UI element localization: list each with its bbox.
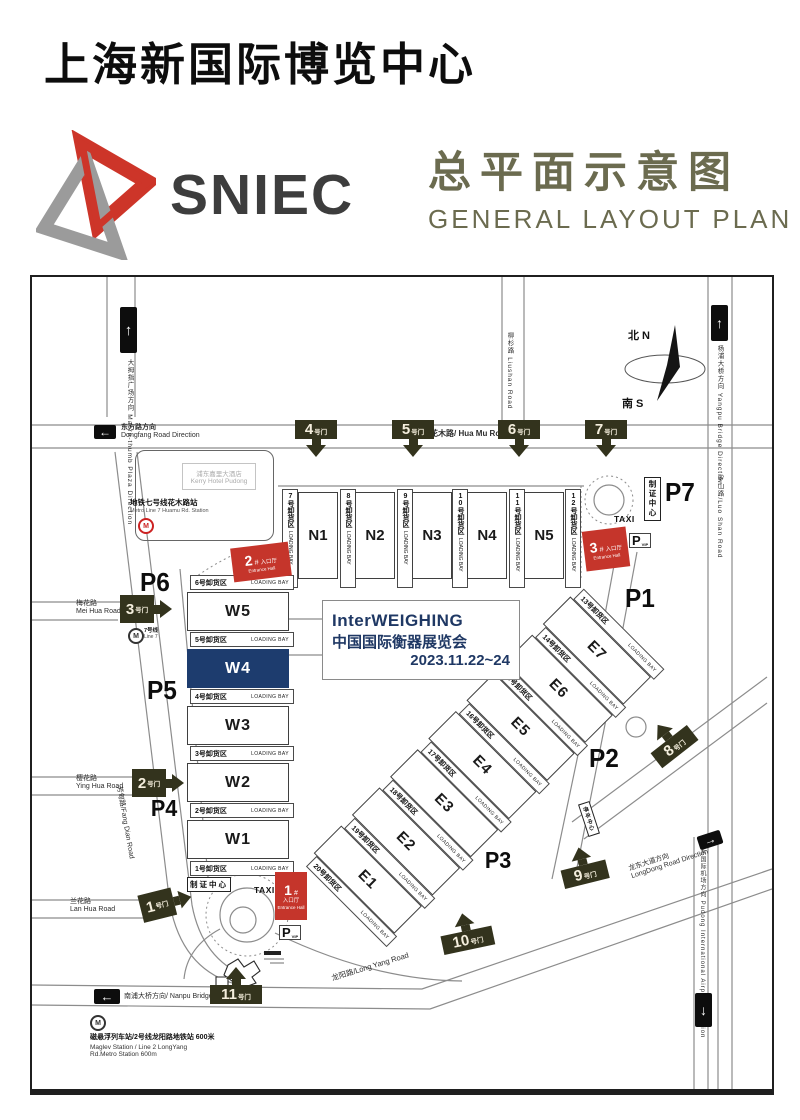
loading-bay-en: LOADING BAY	[251, 808, 289, 814]
road-liushan: 柳杉路 Liushan Road	[504, 332, 514, 422]
kerry-hotel-label: 浦东嘉里大酒店 Kerry Hotel Pudong	[182, 463, 256, 490]
hall-w1: W1	[187, 820, 289, 859]
gate-suffix: 号门	[135, 604, 148, 614]
metro-icon-maglev: M	[90, 1015, 106, 1031]
road-luoshan: 罗山路/Luo Shan Road	[714, 475, 724, 547]
loading-bay-en: LOADING BAY	[402, 531, 408, 565]
hall-n2: N2	[355, 492, 395, 579]
gate-11-number: 11	[221, 987, 237, 1002]
loading-bay-en: LOADING BAY	[251, 637, 289, 643]
gate-7-box: 7号门	[585, 420, 627, 439]
gate-6-box: 6号门	[498, 420, 540, 439]
entrance-hall-2: 2#入口厅 Entrance Hall	[230, 542, 292, 583]
loading-bay-4: 4号卸货区LOADING BAY	[190, 689, 294, 704]
hall-w2: W2	[187, 763, 289, 802]
line7-zh: 7号线	[144, 626, 158, 634]
hall-w4-highlighted: W4	[187, 649, 289, 688]
gate-suffix: 号门	[411, 426, 424, 436]
event-dates: 2023.11.22~24	[332, 652, 510, 669]
gate-5-arrow-tip	[403, 445, 423, 457]
layout-map: 北 N 南 S ↑ ← ↑ ← ↓ → 大拇指广场方向 Macro-thumb …	[30, 275, 774, 1095]
loading-bay-9-label: 9号卸货区	[400, 493, 410, 528]
loading-bay-12: 12号卸货区LOADING BAY	[565, 489, 581, 588]
entrance-3-number: 3	[589, 539, 599, 556]
gate-4-number: 4	[305, 422, 313, 437]
road-lan-hua: 兰花路 Lan Hua Road	[70, 896, 115, 913]
metro-icon-huamu: M	[138, 518, 154, 534]
gate-6-number: 6	[508, 422, 516, 437]
loading-bay-en: LOADING BAY	[457, 538, 463, 572]
gate-suffix: 号门	[314, 426, 327, 436]
loading-bay-5-label: 5号卸货区	[195, 635, 227, 645]
loading-bay-en: LOADING BAY	[345, 531, 351, 565]
parking-p2: P2	[589, 743, 619, 774]
event-info-box: InterWEIGHING 中国国际衡器展览会 2023.11.22~24	[322, 600, 520, 680]
gate-suffix: 号门	[583, 868, 598, 881]
parking-p1: P1	[625, 583, 655, 614]
loading-bay-5: 5号卸货区LOADING BAY	[190, 632, 294, 647]
road-mei-hua-zh: 梅花路	[76, 598, 121, 608]
loading-bay-en: LOADING BAY	[251, 866, 289, 872]
sniec-layout-plan: { "header": { "venue_title": "上海新国际博览中心"…	[0, 0, 800, 1120]
road-dongfang-zh: 东方路方向	[121, 422, 200, 432]
badge-center-west: 制证中心	[187, 877, 231, 892]
gate-6: 6号门	[498, 420, 540, 457]
event-name-en: InterWEIGHING	[332, 611, 510, 631]
hall-n1: N1	[298, 492, 338, 579]
parking-p6: P6	[140, 567, 170, 598]
road-lan-hua-en: Lan Hua Road	[70, 906, 115, 913]
loading-bay-11: 11号卸货区LOADING BAY	[509, 489, 525, 588]
vip-p: P	[282, 926, 291, 939]
maglev-en1: Maglev Station / Line 2 LongYang	[90, 1044, 214, 1051]
compass-south-label: 南 S	[622, 395, 643, 411]
gate-6-arrow-tip	[509, 445, 529, 457]
parking-p7: P7	[665, 477, 695, 508]
road-mei-hua-en: Mei Hua Road	[76, 608, 121, 615]
entrance-hall-3: 3#入口厅 Entrance Hall	[582, 526, 631, 571]
loading-bay-2: 2号卸货区LOADING BAY	[190, 803, 294, 818]
road-lan-hua-zh: 兰花路	[70, 896, 115, 906]
taxi-label-north: TAXI	[614, 514, 635, 524]
loading-bay-8-label: 8号卸货区	[343, 493, 353, 528]
loading-bay-9: 9号卸货区LOADING BAY	[397, 489, 413, 588]
taxi-label-south: TAXI	[254, 885, 275, 895]
loading-bay-en: LOADING BAY	[514, 538, 520, 572]
gate-2-box: 2号门	[132, 769, 166, 797]
gate-3: 3号门	[120, 595, 172, 623]
sniec-logo-icon	[36, 130, 156, 260]
loading-bay-3: 3号卸货区LOADING BAY	[190, 746, 294, 761]
gate-suffix: 号门	[517, 426, 530, 436]
loading-bay-10: 10号卸货区LOADING BAY	[452, 489, 468, 588]
vip-p: P	[632, 534, 641, 547]
huamu-station-zh: 地铁七号线花木路站	[130, 497, 209, 508]
logo-text: SNIEC	[170, 162, 354, 228]
loading-bay-en: LOADING BAY	[251, 694, 289, 700]
hall-w5: W5	[187, 592, 289, 631]
gate-5: 5号门	[392, 420, 434, 457]
loading-bay-8: 8号卸货区LOADING BAY	[340, 489, 356, 588]
gate-3-number: 3	[126, 602, 134, 617]
kerry-hotel-en: Kerry Hotel Pudong	[191, 478, 248, 485]
huamu-station-en: Metro Line 7 Huamu Rd. Station	[130, 508, 209, 514]
maglev-zh: 磁悬浮列车站/2号线龙阳路地铁站 600米	[90, 1032, 214, 1042]
parking-p5: P5	[147, 675, 177, 706]
venue-title: 上海新国际博览中心	[44, 28, 476, 93]
vip-parking-north: PVIP	[629, 533, 651, 548]
entrance-1-en: Entrance Hall	[277, 905, 304, 910]
road-dongfang-en: Dongfang Road Direction	[121, 432, 200, 439]
gate-2-arrow-tip	[172, 774, 184, 792]
gate-3-box: 3号门	[120, 595, 154, 623]
gate-7-arrow-tip	[596, 445, 616, 457]
gate-4-arrow-tip	[306, 445, 326, 457]
gate-suffix: 号门	[154, 898, 169, 911]
hall-w3: W3	[187, 706, 289, 745]
entrance-hall-1: 1# 入口厅 Entrance Hall	[275, 872, 307, 920]
loading-bay-4-label: 4号卸货区	[195, 692, 227, 702]
loading-bay-2-label: 2号卸货区	[195, 806, 227, 816]
gate-11: 11号门	[210, 967, 262, 1004]
gate-2: 2号门	[132, 769, 184, 797]
gate-2-number: 2	[138, 776, 146, 791]
gate-11-arrow-tip	[226, 967, 246, 979]
parking-p4: P4	[151, 795, 177, 822]
dongfang-arrow-icon: ←	[94, 425, 116, 439]
nanpu-arrow-icon: ←	[94, 989, 120, 1004]
hall-n4: N4	[467, 492, 507, 579]
badge-center-north: 制证中心	[644, 477, 661, 521]
gate-5-box: 5号门	[392, 420, 434, 439]
road-dongfang: 东方路方向 Dongfang Road Direction	[121, 422, 200, 439]
gate-3-arrow-tip	[160, 600, 172, 618]
gate-7-number: 7	[595, 422, 603, 437]
macro-thumb-arrow-icon: ↑	[120, 307, 137, 353]
plan-title-zh: 总平面示意图	[428, 138, 740, 200]
maglev-en2: Rd.Metro Station 600m	[90, 1051, 214, 1058]
gate-4-box: 4号门	[295, 420, 337, 439]
loading-bay-en: LOADING BAY	[251, 751, 289, 757]
line7-station-label: 7号线 Line 7	[144, 626, 158, 640]
gate-suffix: 号门	[147, 778, 160, 788]
loading-bay-12-label: 12号卸货区	[568, 493, 578, 535]
gate-10-number: 10	[451, 933, 470, 951]
loading-bay-10-label: 10号卸货区	[455, 493, 465, 535]
vip-label: VIP	[292, 934, 298, 939]
loading-bay-1-label: 1号卸货区	[195, 864, 227, 874]
loading-bay-en: LOADING BAY	[251, 580, 289, 586]
entrance-1-number: 1	[284, 882, 292, 898]
parking-p3: P3	[485, 847, 511, 874]
compass-north-label: 北 N	[628, 327, 650, 343]
yangpu-arrow-icon: ↑	[711, 305, 728, 341]
loading-bay-3-label: 3号卸货区	[195, 749, 227, 759]
gate-11-box: 11号门	[210, 985, 262, 1004]
road-ying-hua-zh: 樱花路	[76, 773, 123, 783]
maglev-station-label: 磁悬浮列车站/2号线龙阳路地铁站 600米 Maglev Station / L…	[90, 1032, 214, 1058]
gate-suffix: 号门	[238, 991, 251, 1001]
entrance-2-number: 2	[244, 552, 254, 569]
kerry-hotel-zh: 浦东嘉里大酒店	[196, 468, 242, 478]
loading-bay-11-label: 11号卸货区	[512, 493, 522, 535]
line7-en: Line 7	[144, 634, 158, 640]
road-mei-hua: 梅花路 Mei Hua Road	[76, 598, 121, 615]
gate-5-number: 5	[402, 422, 410, 437]
loading-bay-7-label: 7号卸货区	[285, 493, 295, 528]
plan-title-en: GENERAL LAYOUT PLAN	[428, 204, 792, 235]
gate-suffix: 号门	[604, 426, 617, 436]
hall-n3: N3	[412, 492, 452, 579]
hall-n5: N5	[524, 492, 564, 579]
metro-icon-line7: M	[128, 628, 144, 644]
vip-label: VIP	[642, 542, 648, 547]
event-name-zh: 中国国际衡器展览会	[332, 631, 510, 652]
gate-suffix: 号门	[469, 934, 484, 946]
loading-bay-en: LOADING BAY	[570, 538, 576, 572]
huamu-station-label: 地铁七号线花木路站 Metro Line 7 Huamu Rd. Station	[130, 497, 209, 514]
gate-4: 4号门	[295, 420, 337, 457]
loading-bay-6-label: 6号卸货区	[195, 578, 227, 588]
road-airport: 浦东国际机场方向 Pudong International Airport Di…	[698, 842, 707, 990]
vip-parking-south: PVIP	[279, 925, 301, 940]
airport-arrow-icon: ↓	[695, 993, 712, 1027]
gate-7: 7号门	[585, 420, 627, 457]
